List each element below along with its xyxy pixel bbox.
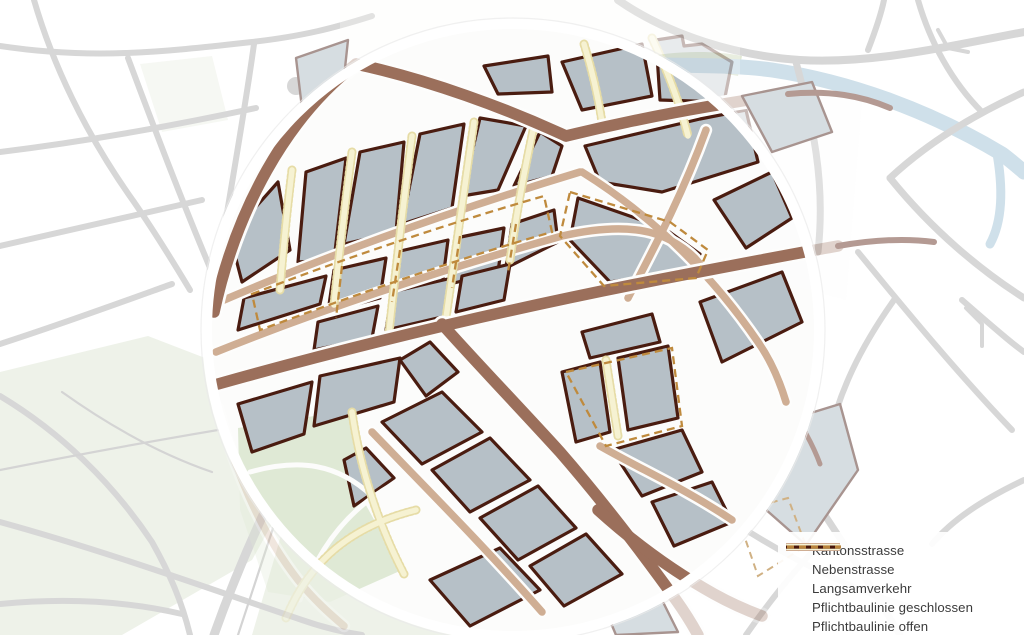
legend-item-nebenstrasse: Nebenstrasse	[786, 560, 973, 579]
legend-item-pflichtbaulinie-geschlossen: Pflichtbaulinie geschlossen	[786, 598, 973, 617]
legend-label: Nebenstrasse	[812, 563, 895, 576]
plan-map-canvas	[0, 0, 1024, 635]
legend-item-pflichtbaulinie-offen: Pflichtbaulinie offen	[786, 617, 973, 635]
legend-item-langsamverkehr: Langsamverkehr	[786, 579, 973, 598]
pflichtbaulinie-offen-swatch-icon	[786, 541, 842, 553]
urban-plan-map-page: Kantonsstrasse Nebenstrasse Langsamverke…	[0, 0, 1024, 635]
legend-label: Pflichtbaulinie geschlossen	[812, 601, 973, 614]
legend-label: Langsamverkehr	[812, 582, 912, 595]
legend: Kantonsstrasse Nebenstrasse Langsamverke…	[786, 541, 973, 635]
legend-label: Pflichtbaulinie offen	[812, 620, 928, 633]
